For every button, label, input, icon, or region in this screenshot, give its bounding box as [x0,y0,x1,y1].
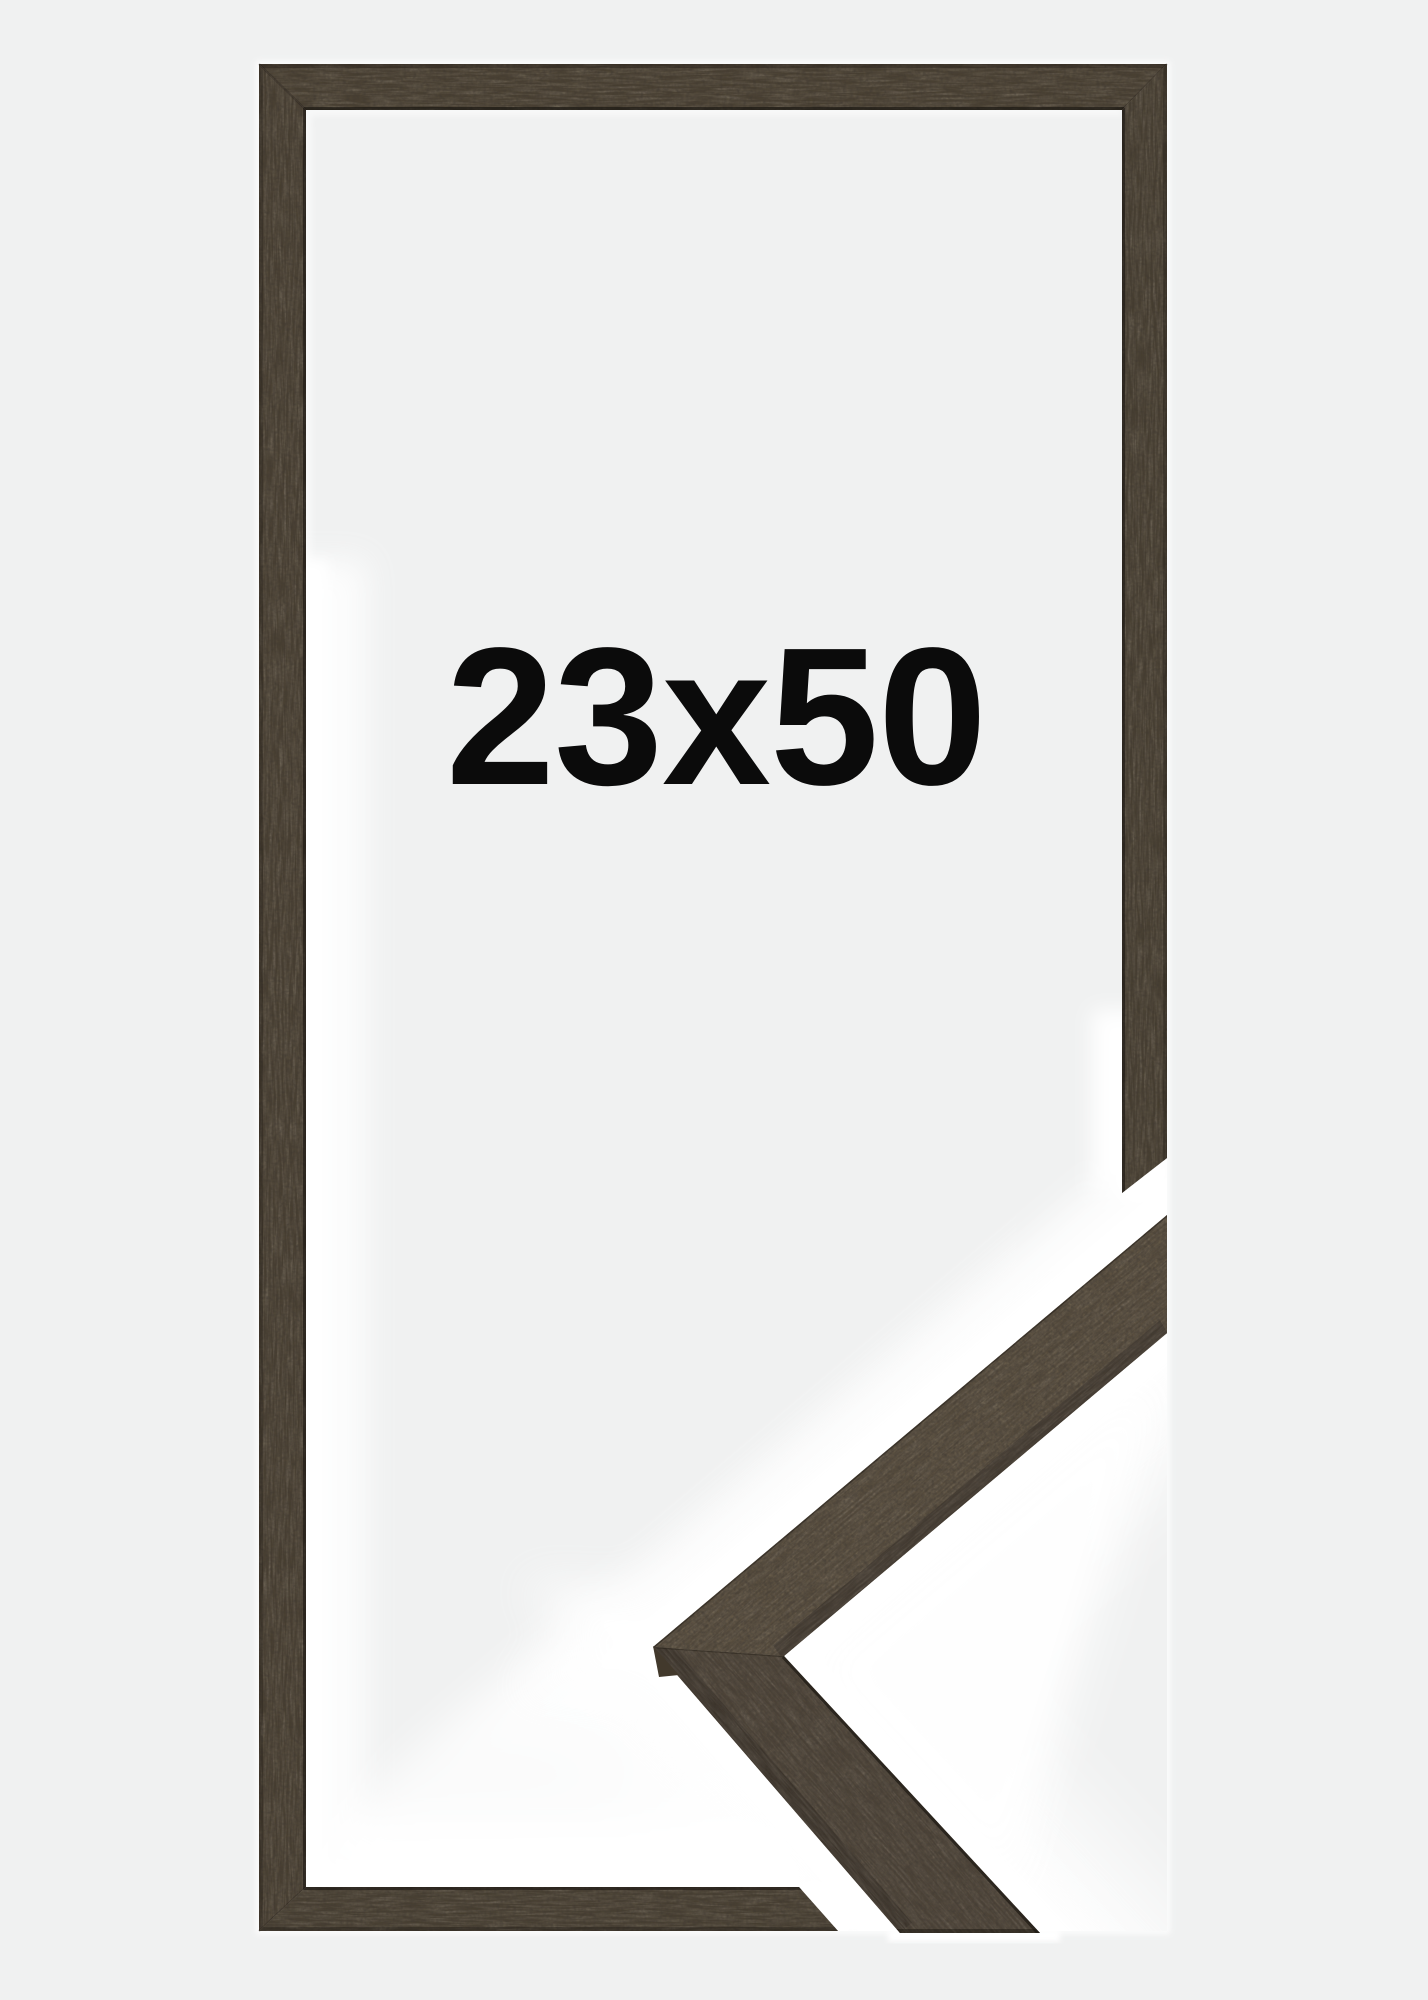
svg-text:23x50: 23x50 [446,607,986,826]
